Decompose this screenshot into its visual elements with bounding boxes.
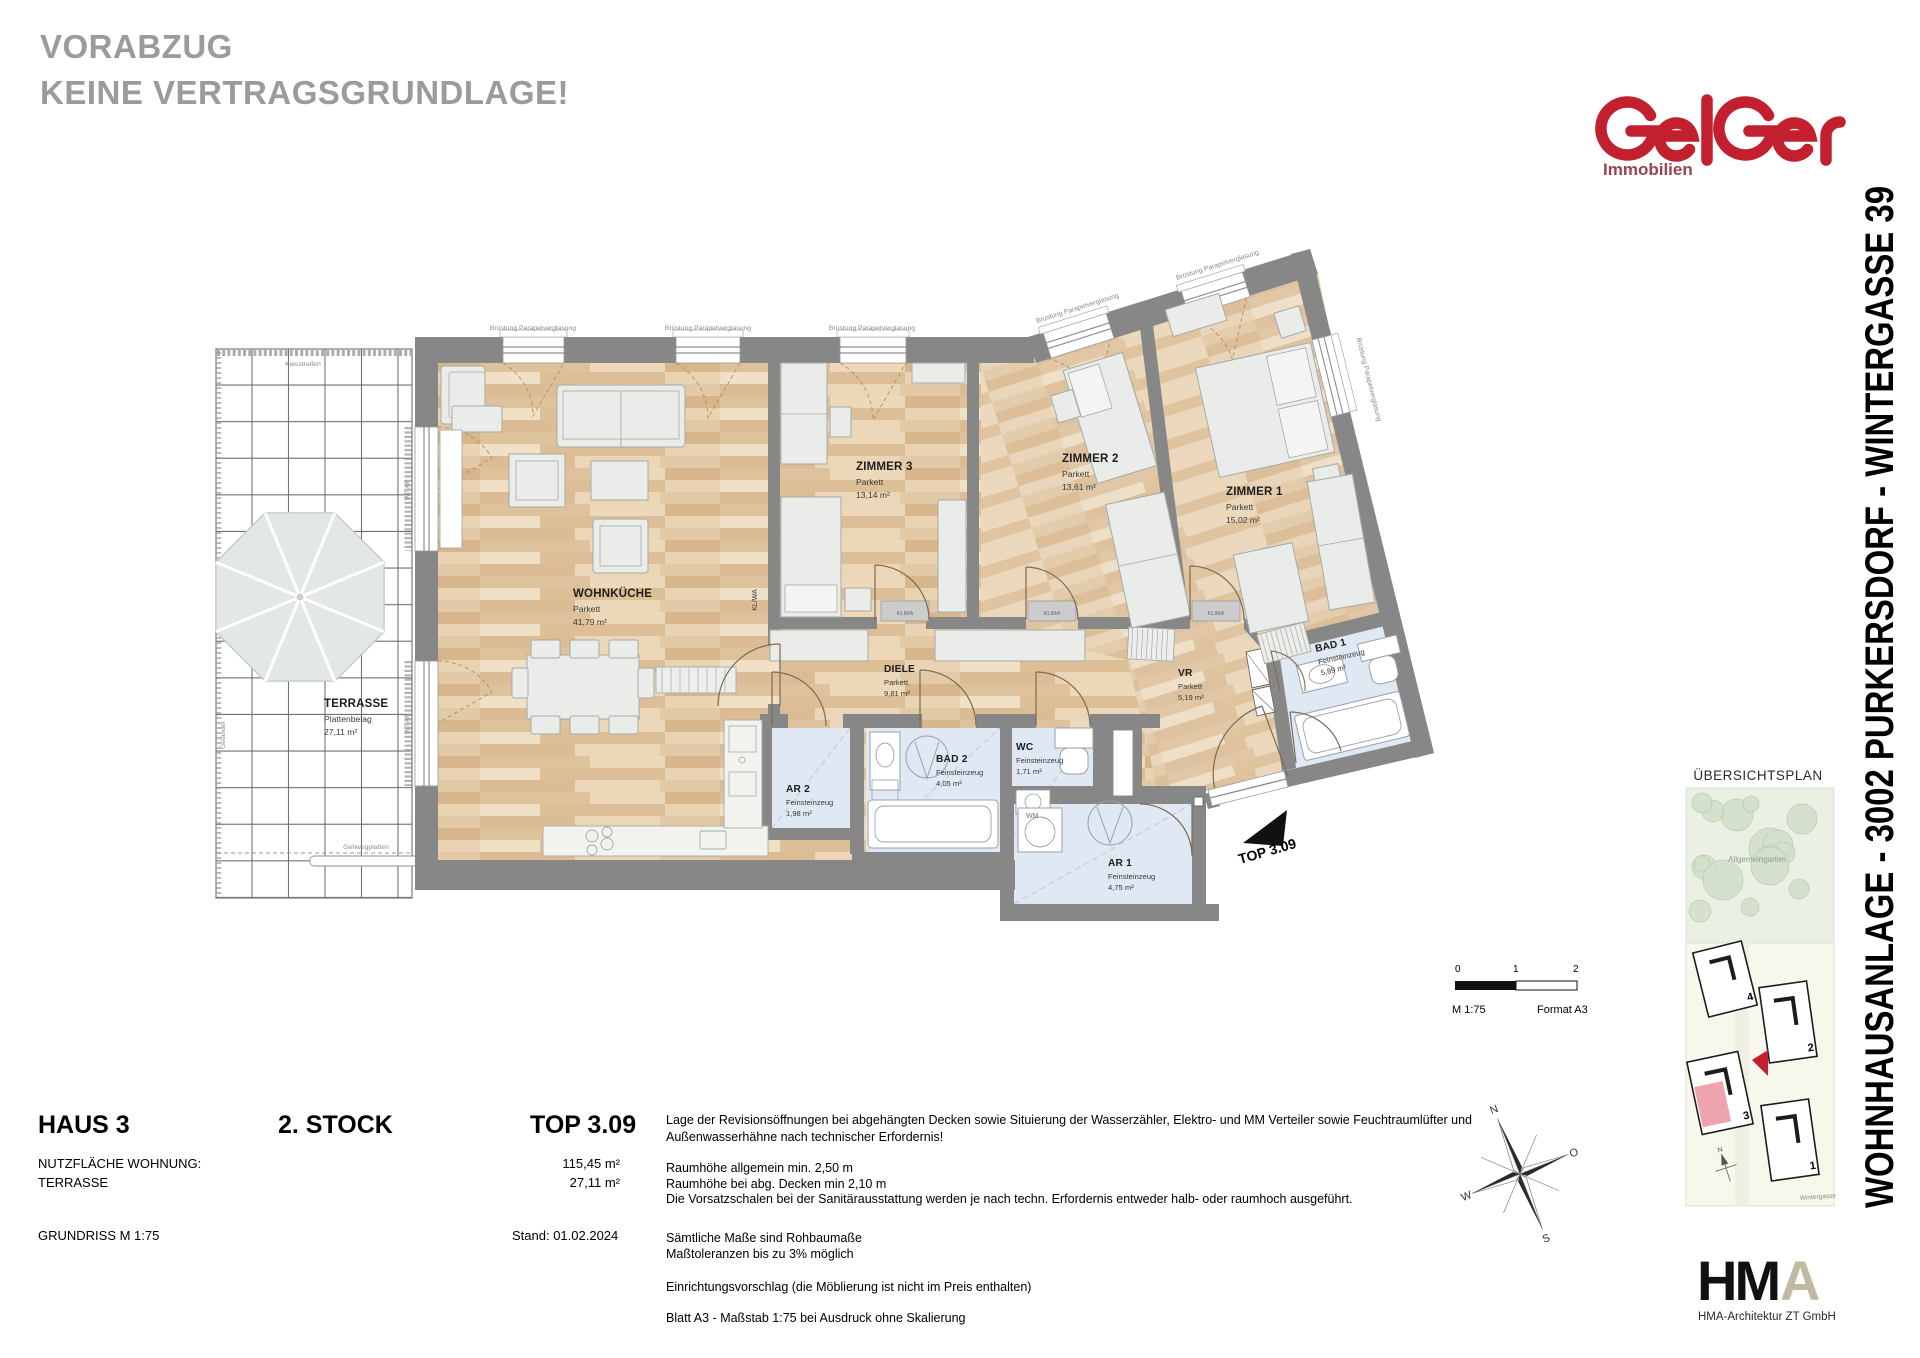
- svg-text:4,75 m²: 4,75 m²: [1108, 883, 1134, 892]
- svg-text:WC: WC: [1016, 742, 1034, 753]
- svg-text:S: S: [1541, 1232, 1552, 1246]
- svg-text:Maßtoleranzen bis zu 3% möglic: Maßtoleranzen bis zu 3% möglich: [666, 1247, 854, 1261]
- svg-text:13,14 m²: 13,14 m²: [856, 490, 890, 500]
- svg-text:VR: VR: [1178, 668, 1193, 679]
- svg-text:N: N: [1488, 1103, 1500, 1117]
- svg-text:AR 2: AR 2: [786, 784, 810, 795]
- svg-text:Parkett: Parkett: [884, 678, 909, 687]
- svg-text:KEINE VERTRAGSGRUNDLAGE!: KEINE VERTRAGSGRUNDLAGE!: [40, 74, 569, 111]
- svg-text:Feinsteinzeug: Feinsteinzeug: [1108, 872, 1155, 881]
- svg-text:2. STOCK: 2. STOCK: [278, 1111, 393, 1139]
- svg-text:KLIMA: KLIMA: [1208, 611, 1225, 617]
- svg-text:Plattenbelag: Plattenbelag: [324, 714, 372, 724]
- svg-text:5,19 m²: 5,19 m²: [1178, 693, 1204, 702]
- svg-text:WM: WM: [1026, 813, 1039, 820]
- svg-text:W7 AF: W7 AF: [404, 480, 411, 500]
- svg-text:9,81 m²: 9,81 m²: [884, 689, 910, 698]
- svg-text:AR 1: AR 1: [1108, 858, 1132, 869]
- svg-text:TERRASSE: TERRASSE: [324, 698, 388, 710]
- svg-text:KL/WA: KL/WA: [752, 589, 759, 611]
- svg-text:DIELE: DIELE: [884, 664, 915, 675]
- svg-text:ÜBERSICHTSPLAN: ÜBERSICHTSPLAN: [1693, 768, 1822, 783]
- svg-text:Parkett: Parkett: [1062, 469, 1090, 479]
- svg-text:ZIMMER 2: ZIMMER 2: [1062, 453, 1119, 465]
- svg-text:Feinsteinzeug: Feinsteinzeug: [1016, 756, 1063, 765]
- svg-text:Parkett: Parkett: [1178, 682, 1203, 691]
- svg-text:KLIMA: KLIMA: [1044, 611, 1061, 617]
- svg-text:1,98 m²: 1,98 m²: [786, 809, 812, 818]
- svg-text:W: W: [1460, 1189, 1475, 1204]
- svg-text:W7 AF: W7 AF: [404, 714, 411, 734]
- svg-text:1: 1: [1513, 964, 1519, 975]
- svg-text:Feinsteinzeug: Feinsteinzeug: [786, 798, 833, 807]
- svg-text:Feinsteinzeug: Feinsteinzeug: [936, 768, 983, 777]
- svg-text:Immobilien: Immobilien: [1603, 160, 1693, 179]
- svg-text:TERRASSE: TERRASSE: [38, 1175, 108, 1190]
- svg-text:GRUNDRISS M 1:75: GRUNDRISS M 1:75: [38, 1228, 159, 1243]
- svg-text:Allgemeingarten: Allgemeingarten: [1728, 855, 1786, 864]
- svg-text:HM: HM: [1697, 1249, 1778, 1312]
- svg-text:Brüstung Parapetverglasung: Brüstung Parapetverglasung: [829, 325, 915, 332]
- svg-text:Einrichtungsvorschlag (die Möb: Einrichtungsvorschlag (die Möblierung is…: [666, 1280, 1031, 1294]
- svg-text:Raumhöhe bei abg. Decken min 2: Raumhöhe bei abg. Decken min 2,10 m: [666, 1177, 886, 1191]
- svg-text:Brüstung Parapetverglasung: Brüstung Parapetverglasung: [665, 325, 751, 332]
- svg-text:Parkett: Parkett: [573, 604, 601, 614]
- svg-text:ZIMMER 1: ZIMMER 1: [1226, 486, 1283, 498]
- svg-text:1,71 m²: 1,71 m²: [1016, 767, 1042, 776]
- svg-text:A: A: [1780, 1249, 1819, 1312]
- svg-text:VORABZUG: VORABZUG: [40, 28, 233, 65]
- svg-text:Gehwegplatten: Gehwegplatten: [343, 844, 389, 851]
- svg-text:Parkett: Parkett: [1226, 502, 1254, 512]
- svg-text:ZIMMER 3: ZIMMER 3: [856, 461, 913, 473]
- svg-text:M 1:75: M 1:75: [1452, 1004, 1486, 1016]
- svg-text:15,02 m²: 15,02 m²: [1226, 515, 1260, 525]
- svg-text:Raumhöhe allgemein min. 2,50 m: Raumhöhe allgemein min. 2,50 m: [666, 1161, 853, 1175]
- svg-text:KLIMA: KLIMA: [897, 611, 914, 617]
- svg-text:Lage der Revisionsöffnungen be: Lage der Revisionsöffnungen bei abgehäng…: [666, 1113, 1472, 1127]
- svg-text:BAD 2: BAD 2: [936, 754, 968, 765]
- svg-text:27,11 m²: 27,11 m²: [570, 1175, 621, 1190]
- svg-text:TOP 3.09: TOP 3.09: [530, 1111, 636, 1139]
- svg-text:Brüstung Parapetverglasung: Brüstung Parapetverglasung: [1355, 337, 1383, 422]
- svg-text:Format A3: Format A3: [1537, 1004, 1588, 1016]
- svg-text:0: 0: [1455, 964, 1461, 975]
- svg-text:Kiesstreifen: Kiesstreifen: [285, 361, 321, 368]
- svg-text:Geländer: Geländer: [220, 720, 227, 749]
- svg-text:O: O: [1568, 1146, 1581, 1160]
- svg-text:27,11 m²: 27,11 m²: [324, 727, 357, 737]
- svg-text:Parkett: Parkett: [856, 477, 884, 487]
- svg-text:Blatt A3 - Maßstab 1:75 bei Au: Blatt A3 - Maßstab 1:75 bei Ausdruck ohn…: [666, 1311, 966, 1325]
- svg-text:Außenwasserhähne nach technisc: Außenwasserhähne nach technischer Erford…: [666, 1130, 943, 1144]
- svg-text:Brüstung Parapetverglasung: Brüstung Parapetverglasung: [490, 325, 576, 332]
- svg-text:Die Vorsatzschalen bei der San: Die Vorsatzschalen bei der Sanitäraussta…: [666, 1192, 1353, 1206]
- svg-text:115,45 m²: 115,45 m²: [562, 1156, 620, 1171]
- svg-text:13,61 m²: 13,61 m²: [1062, 482, 1096, 492]
- svg-text:WOHNKÜCHE: WOHNKÜCHE: [573, 587, 652, 600]
- svg-text:WOHNHAUSANLAGE - 3002 PURKERSD: WOHNHAUSANLAGE - 3002 PURKERSDORF - WINT…: [1858, 186, 1902, 1208]
- svg-text:Stand: 01.02.2024: Stand: 01.02.2024: [512, 1228, 618, 1243]
- svg-text:NUTZFLÄCHE WOHNUNG:: NUTZFLÄCHE WOHNUNG:: [38, 1156, 201, 1171]
- svg-text:2: 2: [1573, 964, 1579, 975]
- svg-text:Sämtliche Maße sind Rohbaumaße: Sämtliche Maße sind Rohbaumaße: [666, 1231, 862, 1245]
- svg-text:4,05 m²: 4,05 m²: [936, 779, 962, 788]
- svg-text:41,79 m²: 41,79 m²: [573, 617, 607, 627]
- svg-text:HMA-Architektur ZT GmbH: HMA-Architektur ZT GmbH: [1698, 1311, 1836, 1323]
- svg-text:HAUS 3: HAUS 3: [38, 1111, 130, 1139]
